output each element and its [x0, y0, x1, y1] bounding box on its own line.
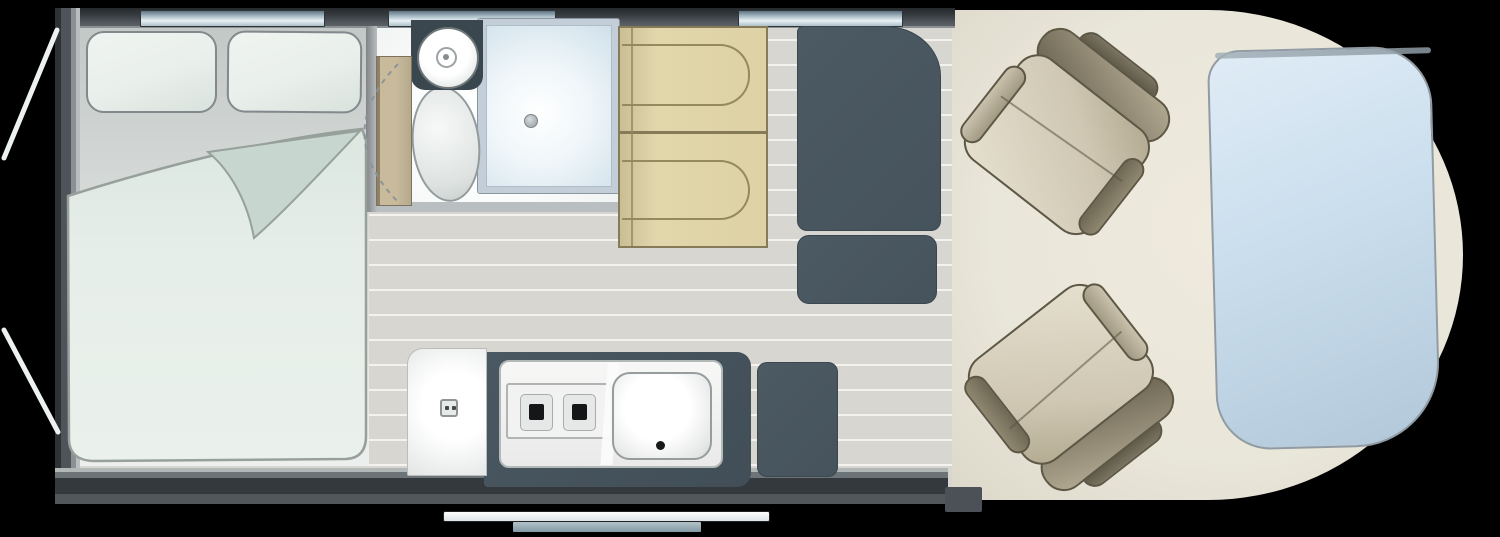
- basin-plug-icon: [443, 54, 449, 60]
- wardrobe-unit: [797, 26, 941, 231]
- washroom-threshold: [375, 202, 623, 212]
- entry-step-upper: [443, 511, 770, 522]
- motorhome-floorplan: [0, 0, 1500, 537]
- gas-control-dot: [452, 406, 456, 410]
- window-over-bed: [140, 10, 325, 27]
- cab-drop-down-bed: [1207, 45, 1441, 451]
- sink-drain-icon: [656, 441, 665, 450]
- hob-burner-grate-icon: [572, 404, 587, 420]
- window-over-wardrobe: [738, 10, 903, 27]
- travel-seat-divider: [618, 131, 768, 134]
- rear-wall: [55, 8, 80, 502]
- pillow: [86, 31, 217, 113]
- shower-tray: [486, 25, 612, 187]
- entry-step-lower: [513, 522, 701, 532]
- wall-end-post: [945, 487, 982, 512]
- low-cabinet: [757, 362, 838, 477]
- drawer-unit: [797, 235, 937, 304]
- shower-drain-icon: [524, 114, 538, 128]
- washroom-sliding-door: [376, 56, 412, 206]
- travel-seat-backrest-outline: [622, 44, 750, 106]
- corner-steady-bottom: [4, 330, 58, 432]
- pillow: [227, 30, 363, 113]
- travel-seat-seam: [631, 28, 633, 246]
- hob-burner-grate-icon: [529, 404, 544, 420]
- corner-steady-top: [4, 30, 57, 158]
- travel-seat-backrest-outline: [622, 160, 750, 220]
- gas-control-dot: [445, 406, 449, 410]
